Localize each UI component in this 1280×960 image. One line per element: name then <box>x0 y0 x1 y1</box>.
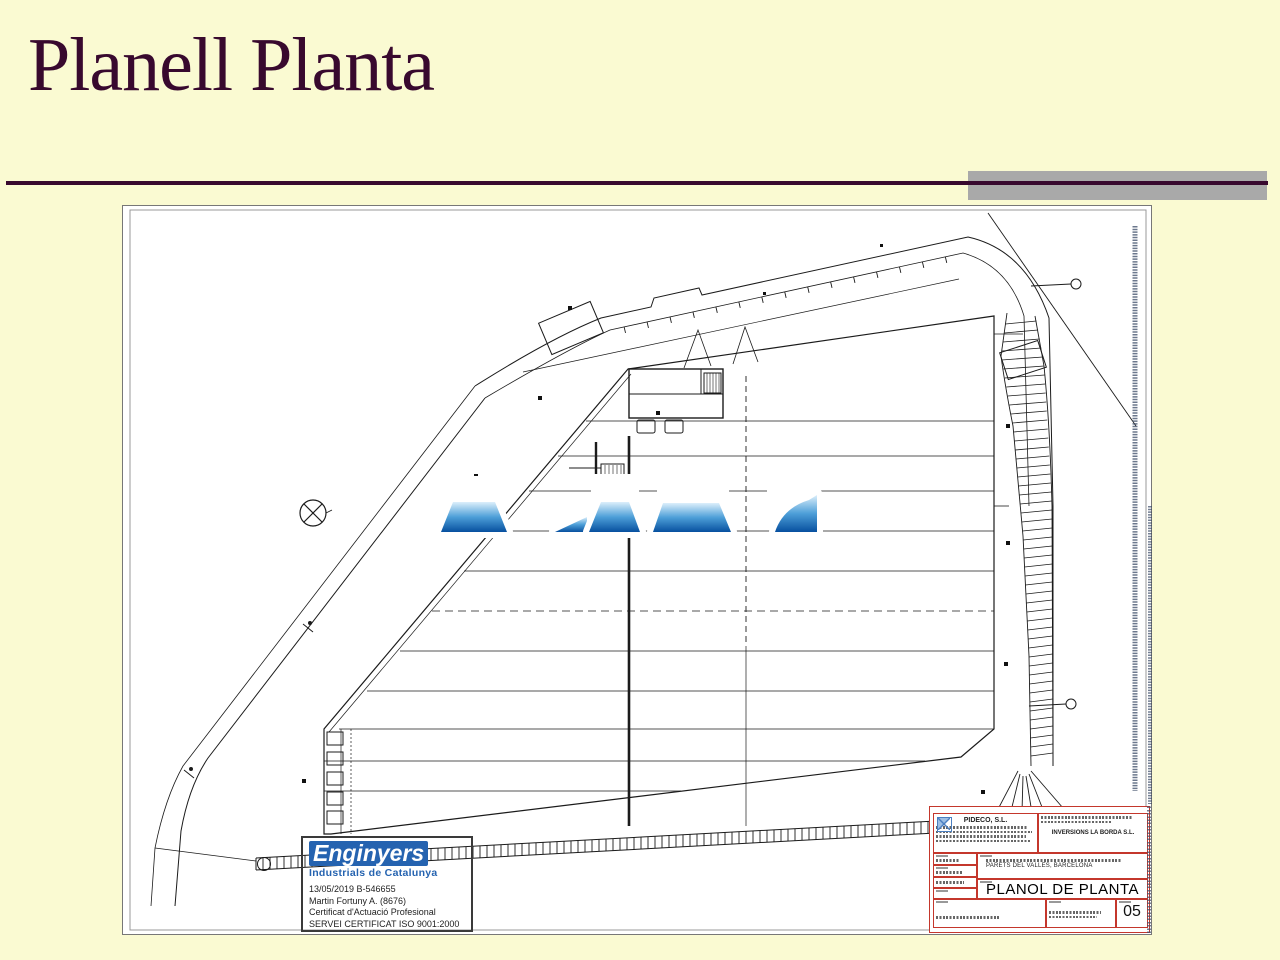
drawing-title-cell: PLANOL DE PLANTA <box>977 879 1148 899</box>
ramp-strip <box>985 313 1063 848</box>
stamp-iso-line: SERVEI CERTIFICAT ISO 9001:2000 <box>309 919 465 931</box>
scale-cell <box>933 853 977 865</box>
client-name: INVERSIONS LA BORDA S.L. <box>1039 830 1147 836</box>
stamp-cert-line: Certificat d'Actuació Profesional <box>309 907 465 919</box>
format-cell <box>933 865 977 877</box>
site-boundary <box>151 237 1053 906</box>
blue-watermark <box>441 464 821 532</box>
sheet-number-cell: 05 <box>1116 899 1148 928</box>
title-divider-line <box>6 181 1268 185</box>
revision-cell <box>933 888 977 899</box>
drawing-title: PLANOL DE PLANTA <box>978 881 1147 898</box>
stamp-org-subtitle: Industrials de Catalunya <box>309 867 465 879</box>
north-compass-icon <box>300 500 332 526</box>
loading-docks <box>327 729 351 834</box>
owner-cell <box>933 899 1046 928</box>
slide: Planell Planta <box>0 0 1280 960</box>
company-logo-icon <box>937 817 952 832</box>
author-cell <box>1046 899 1116 928</box>
section-line <box>988 213 1136 709</box>
engineer-stamp: Enginyers Industrials de Catalunya 13/05… <box>301 836 473 932</box>
title-block-client-cell: INVERSIONS LA BORDA S.L. <box>1038 813 1148 853</box>
sheet-number: 05 <box>1117 903 1147 921</box>
margin-fine-print <box>1135 226 1150 804</box>
office-block <box>569 327 758 498</box>
slide-title: Planell Planta <box>28 22 434 109</box>
date-cell <box>933 877 977 888</box>
title-block: PIDECO, S.L. INVERSIONS LA BORDA S.L. <box>929 806 1150 933</box>
title-block-fine-print <box>1147 806 1151 933</box>
project-location-cell: PARETS DEL VALLES, BARCELONA <box>977 853 1148 879</box>
project-location: PARETS DEL VALLES, BARCELONA <box>986 863 1147 869</box>
title-block-company-cell: PIDECO, S.L. <box>933 813 1038 853</box>
drawing-sheet: Enginyers Industrials de Catalunya 13/05… <box>122 205 1152 935</box>
stamp-org-name: Enginyers <box>309 841 428 866</box>
stamp-date-number: 13/05/2019 B-546655 <box>309 884 465 896</box>
accent-bar <box>968 171 1267 200</box>
stamp-engineer-name: Martin Fortuny A. (8676) <box>309 896 465 908</box>
